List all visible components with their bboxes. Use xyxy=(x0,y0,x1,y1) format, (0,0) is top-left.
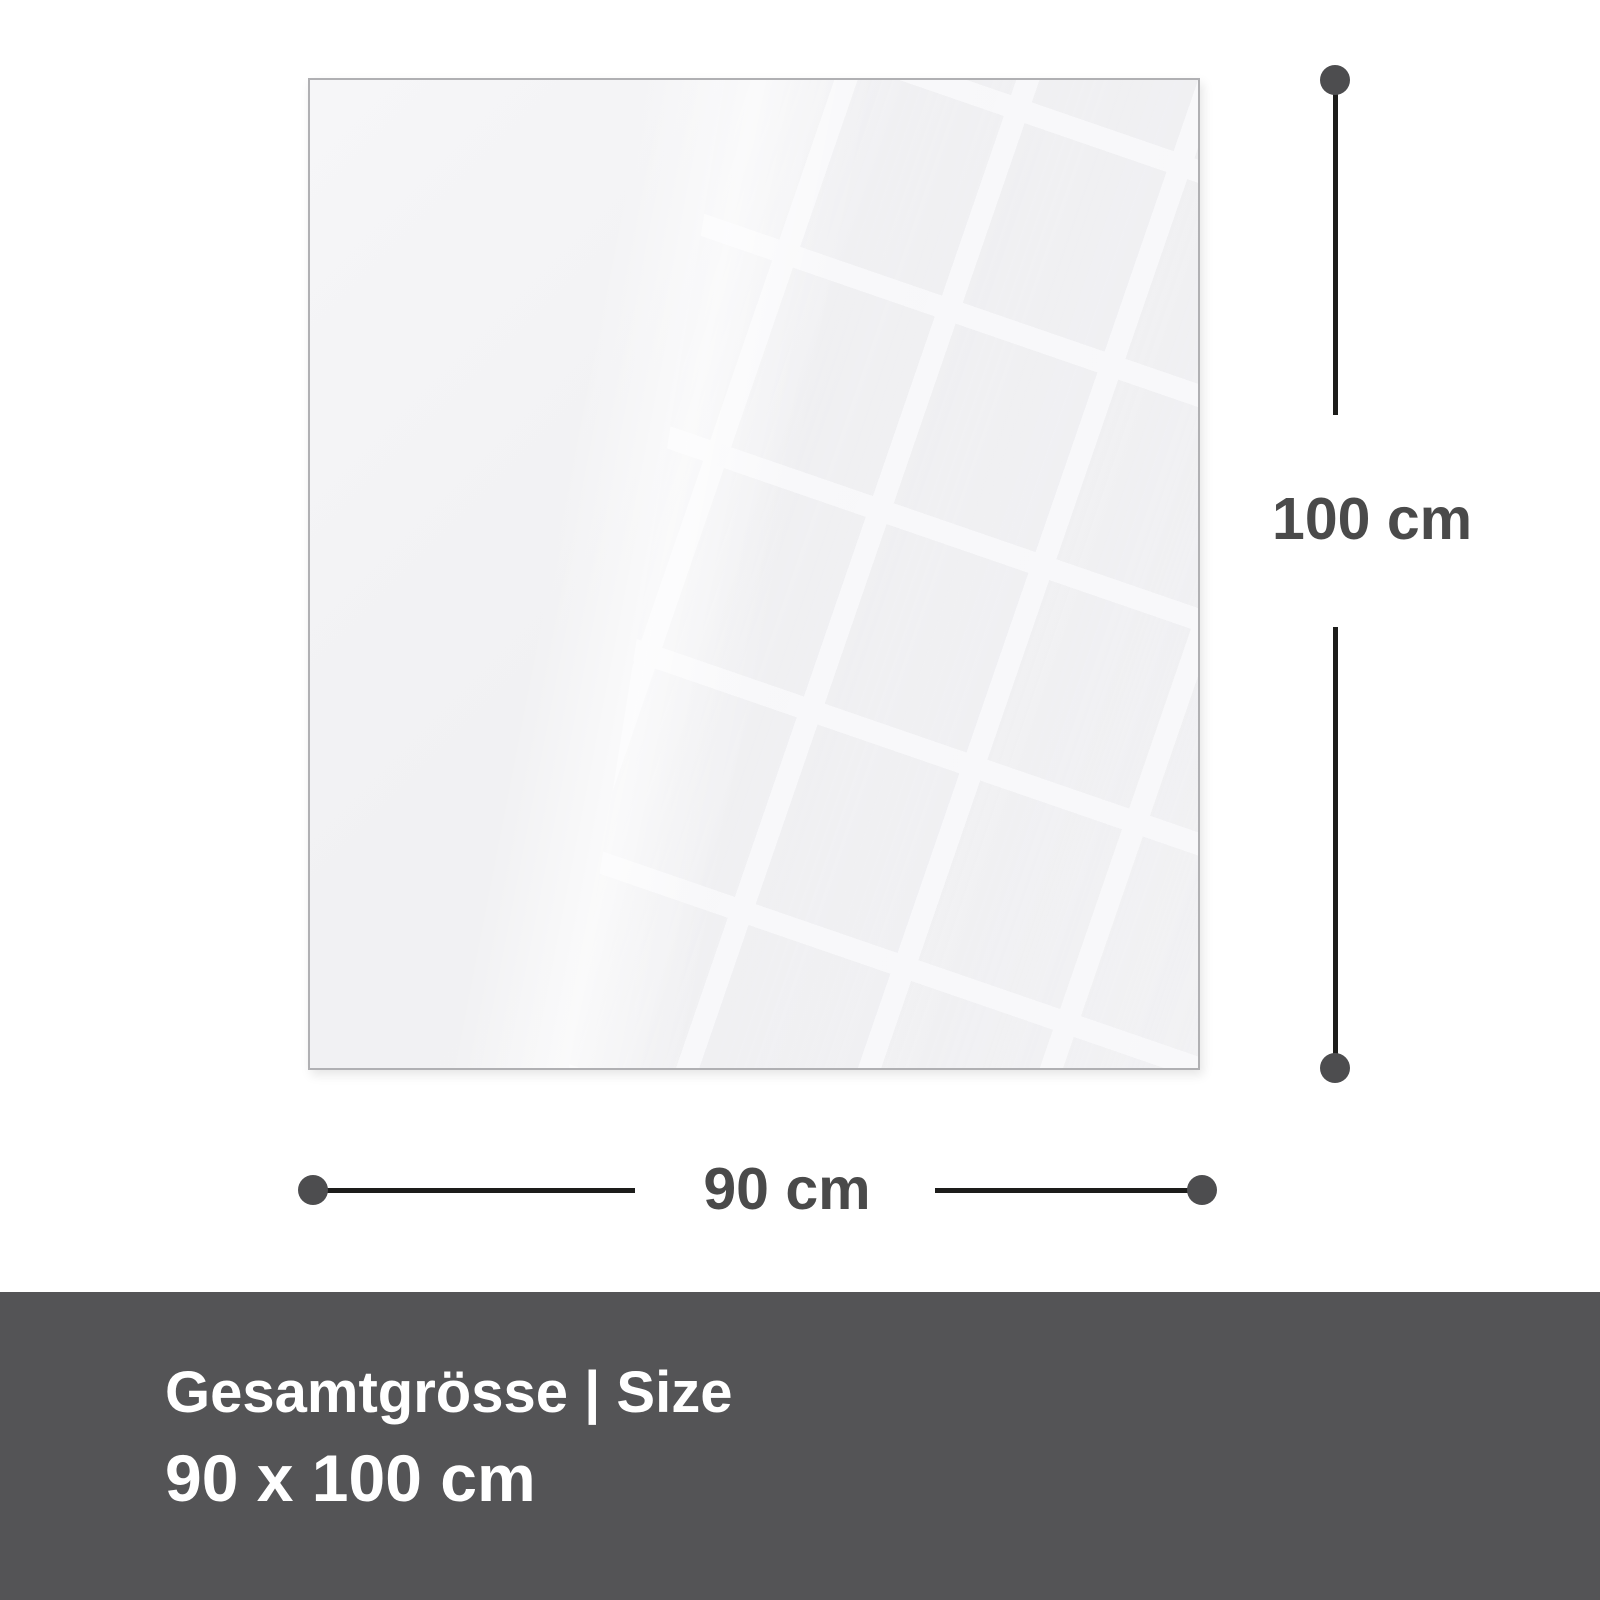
dimension-endpoint-dot-bottom xyxy=(1320,1053,1350,1083)
height-dimension-label: 100 cm xyxy=(1272,490,1472,549)
dimension-endpoint-dot-left xyxy=(298,1175,328,1205)
width-dimension-line-right xyxy=(935,1188,1188,1193)
dimension-endpoint-dot-right xyxy=(1187,1175,1217,1205)
footer-heading: Gesamtgrösse | Size xyxy=(165,1364,732,1422)
footer-size-value: 90 x 100 cm xyxy=(165,1445,536,1511)
product-panel xyxy=(308,78,1200,1070)
height-dimension-line-lower xyxy=(1333,627,1338,1055)
height-dimension-line-upper xyxy=(1333,94,1338,415)
width-dimension-line-left xyxy=(327,1188,635,1193)
product-size-diagram: 100 cm 90 cm Gesamtgrösse | Size 90 x 10… xyxy=(0,0,1600,1600)
footer-bar: Gesamtgrösse | Size 90 x 100 cm xyxy=(0,1292,1600,1600)
width-dimension-label: 90 cm xyxy=(687,1160,887,1219)
dimension-endpoint-dot-top xyxy=(1320,65,1350,95)
